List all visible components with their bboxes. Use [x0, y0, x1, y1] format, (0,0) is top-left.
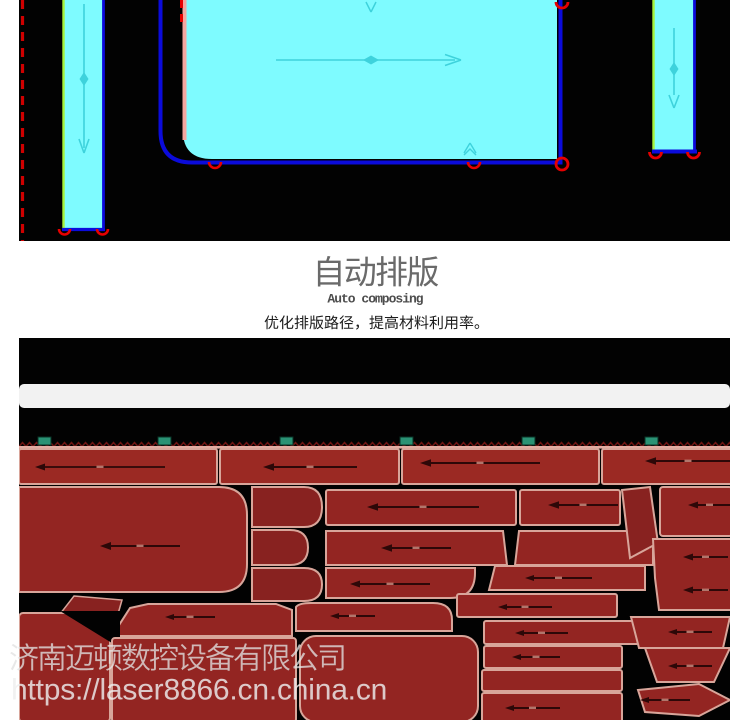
svg-text:Auto composing: Auto composing [327, 292, 423, 307]
svg-text:https://laser8866.cn.china.cn: https://laser8866.cn.china.cn [11, 674, 387, 707]
